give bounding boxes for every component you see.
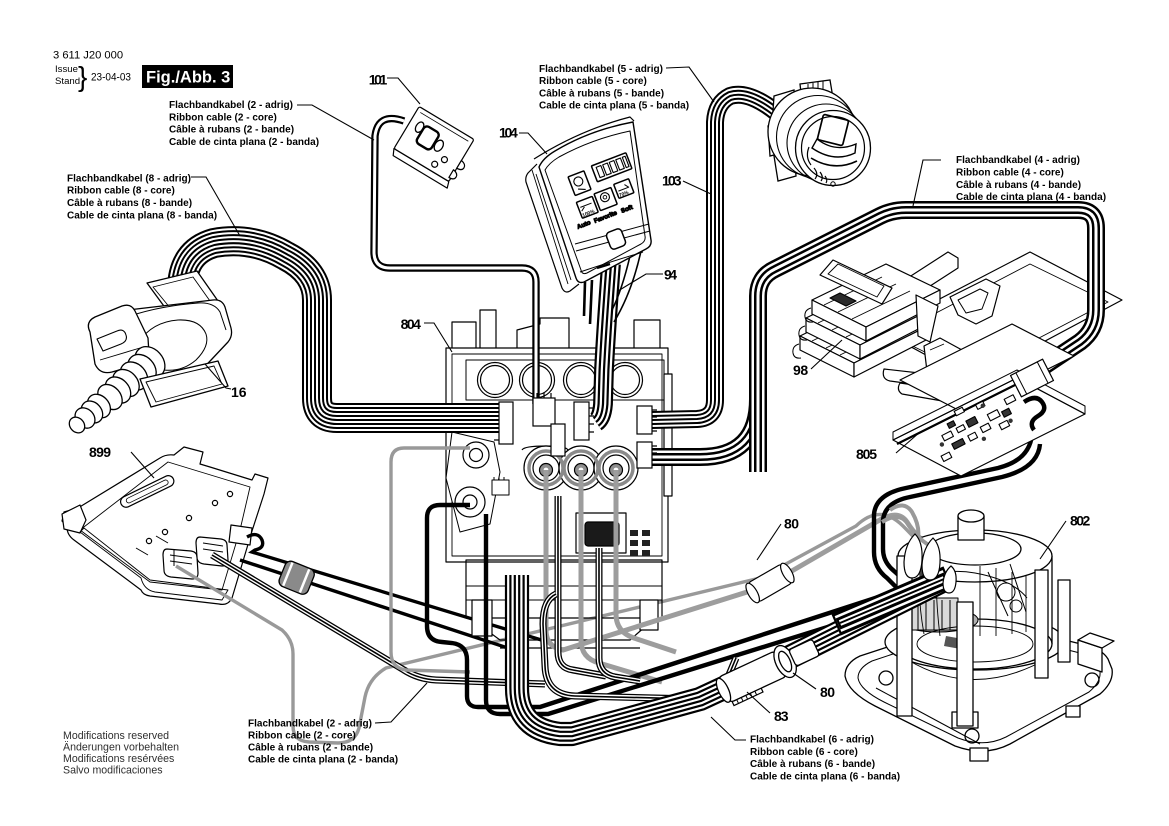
svg-text:Câble à rubans (4 - bande): Câble à rubans (4 - bande) <box>956 180 1081 191</box>
svg-text:3 611 J20 000: 3 611 J20 000 <box>53 50 123 62</box>
svg-text:Ribbon cable (2 - core): Ribbon cable (2 - core) <box>169 112 277 123</box>
svg-text:Flachbandkabel (2 - adrig): Flachbandkabel (2 - adrig) <box>248 718 372 729</box>
svg-text:Ribbon cable (2 - core): Ribbon cable (2 - core) <box>248 730 356 741</box>
svg-text:Modifications reserved: Modifications reserved <box>63 730 169 742</box>
svg-text:Flachbandkabel (2 - adrig): Flachbandkabel (2 - adrig) <box>169 100 293 111</box>
svg-text:16: 16 <box>231 384 247 400</box>
svg-text:Câble à rubans (2 - bande): Câble à rubans (2 - bande) <box>169 125 294 136</box>
svg-text:805: 805 <box>856 446 877 462</box>
svg-text:104: 104 <box>499 125 518 141</box>
svg-text:Modifications resérvées: Modifications resérvées <box>63 753 174 765</box>
svg-text:Fig./Abb. 3: Fig./Abb. 3 <box>146 69 230 87</box>
svg-text:Cable de cinta plana (2 - band: Cable de cinta plana (2 - banda) <box>248 755 398 766</box>
svg-text:Cable de cinta plana (2 - band: Cable de cinta plana (2 - banda) <box>169 137 319 148</box>
svg-text:Flachbandkabel (5 - adrig): Flachbandkabel (5 - adrig) <box>539 64 663 75</box>
svg-text:802: 802 <box>1070 513 1091 529</box>
svg-text:Ribbon cable (5 - core): Ribbon cable (5 - core) <box>539 76 647 87</box>
svg-text:Câble à rubans (6 - bande): Câble à rubans (6 - bande) <box>750 759 875 770</box>
svg-text:Câble à rubans (5 - bande): Câble à rubans (5 - bande) <box>539 88 664 99</box>
svg-text:899: 899 <box>89 444 111 460</box>
svg-text:Salvo modificaciones: Salvo modificaciones <box>63 765 163 777</box>
svg-text:Cable de cinta plana (5 - band: Cable de cinta plana (5 - banda) <box>539 101 689 112</box>
svg-text:Änderungen vorbehalten: Änderungen vorbehalten <box>63 742 179 754</box>
svg-text:103: 103 <box>662 173 682 189</box>
svg-text:Ribbon cable (4 - core): Ribbon cable (4 - core) <box>956 168 1064 179</box>
svg-text:94: 94 <box>664 267 677 283</box>
svg-text:}: } <box>78 61 87 92</box>
svg-text:Cable de cinta plana (6 - band: Cable de cinta plana (6 - banda) <box>750 772 900 783</box>
svg-text:Issue: Issue <box>55 64 78 75</box>
svg-text:Cable de cinta plana (8 - band: Cable de cinta plana (8 - banda) <box>67 210 217 221</box>
svg-text:101: 101 <box>369 72 388 88</box>
svg-text:804: 804 <box>401 316 422 332</box>
svg-text:83: 83 <box>774 708 789 724</box>
svg-text:Flachbandkabel (4 - adrig): Flachbandkabel (4 - adrig) <box>956 155 1080 166</box>
svg-text:Ribbon cable (8 - core): Ribbon cable (8 - core) <box>67 186 175 197</box>
svg-text:Stand: Stand <box>55 76 80 87</box>
svg-text:80: 80 <box>784 516 799 532</box>
svg-text:80: 80 <box>820 684 835 700</box>
svg-text:Câble à rubans (2 - bande): Câble à rubans (2 - bande) <box>248 743 373 754</box>
svg-text:98: 98 <box>793 362 808 378</box>
svg-text:Ribbon cable (6 - core): Ribbon cable (6 - core) <box>750 747 858 758</box>
svg-text:Cable de cinta plana (4 - band: Cable de cinta plana (4 - banda) <box>956 192 1106 203</box>
svg-text:23-04-03: 23-04-03 <box>91 72 131 84</box>
svg-text:Flachbandkabel (6 - adrig): Flachbandkabel (6 - adrig) <box>750 735 874 746</box>
svg-text:Flachbandkabel (8 - adrig): Flachbandkabel (8 - adrig) <box>67 173 191 184</box>
svg-text:Câble à rubans (8 - bande): Câble à rubans (8 - bande) <box>67 198 192 209</box>
